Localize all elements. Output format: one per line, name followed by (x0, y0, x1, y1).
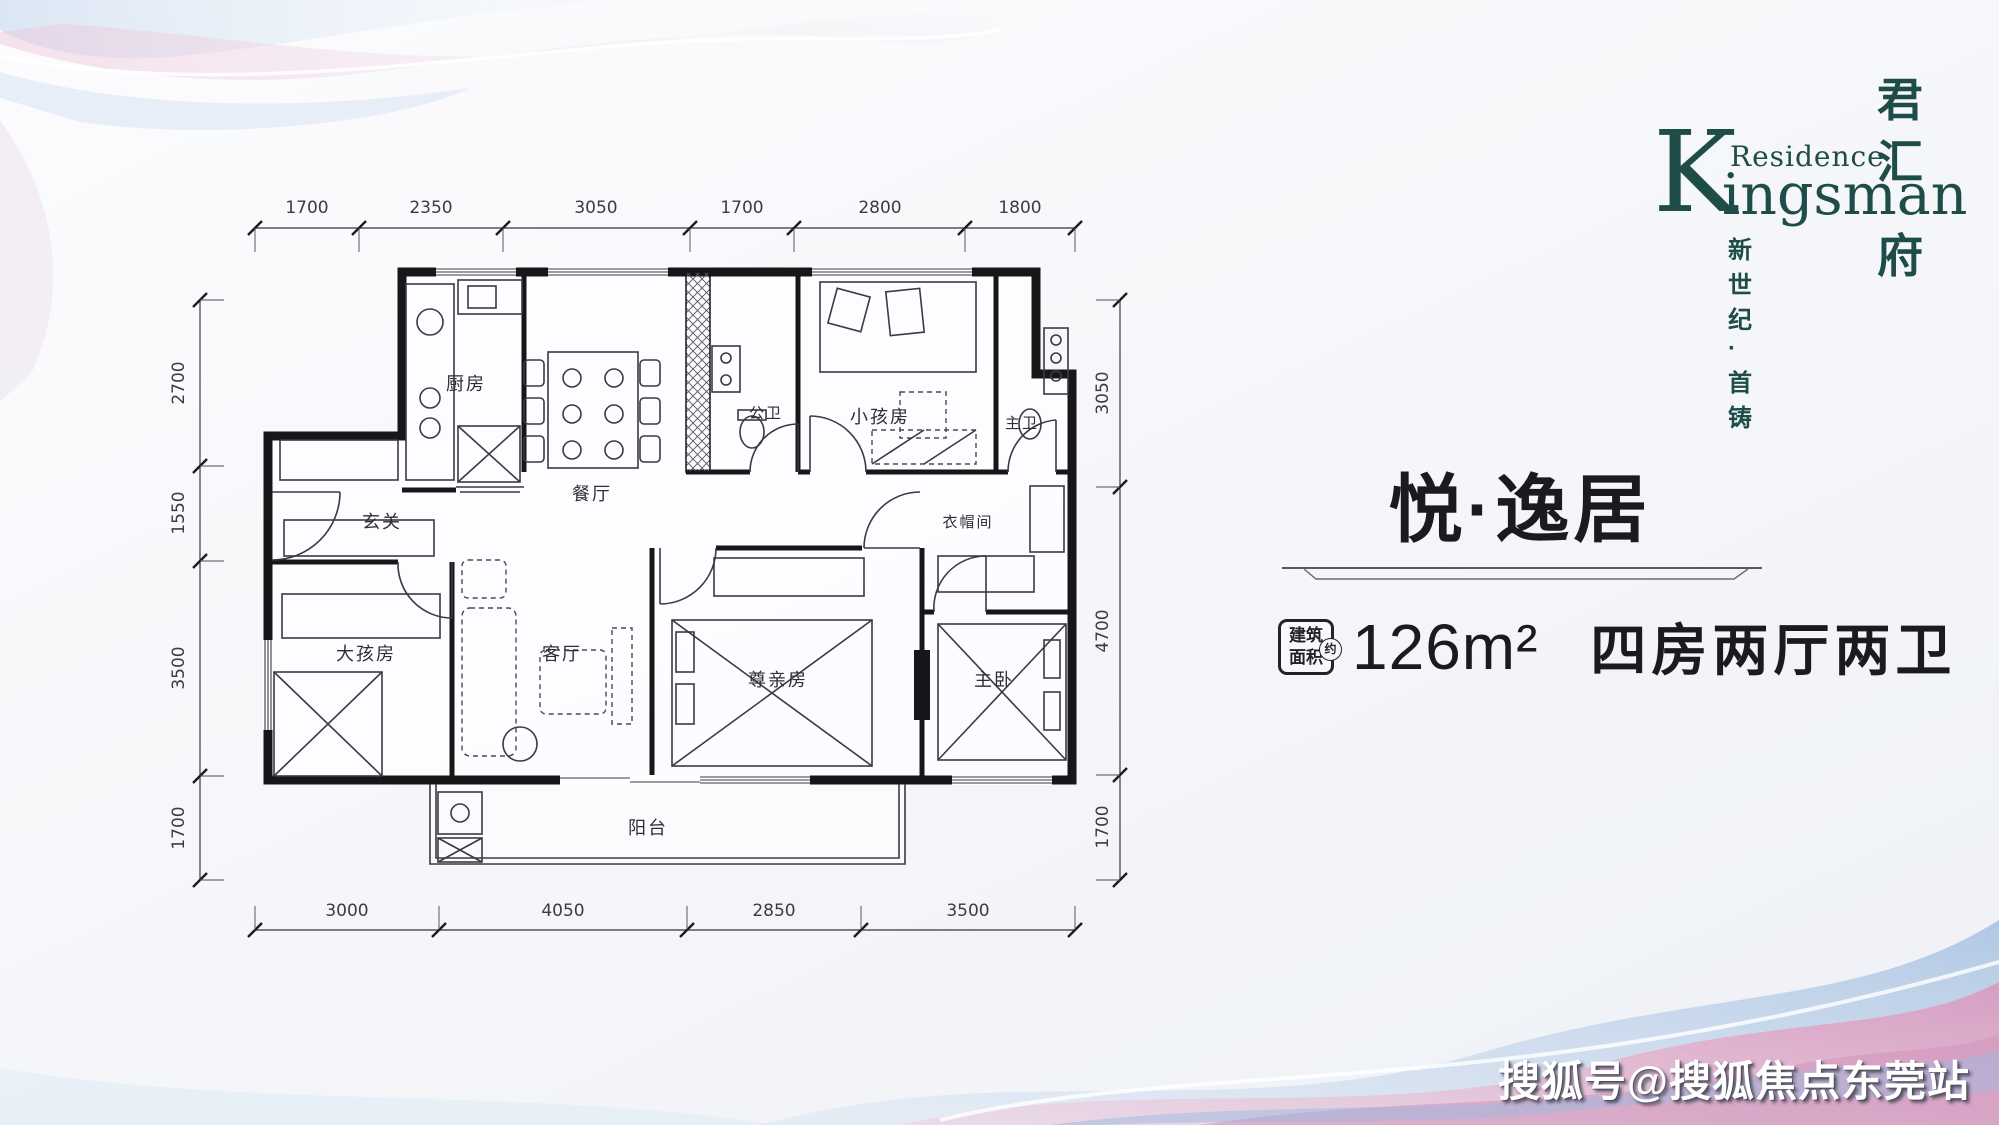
dim-right-0: 3050 (1093, 371, 1113, 414)
window-parents (700, 775, 810, 785)
area-label-box: 建筑 面积 约 (1278, 619, 1334, 675)
room-label-parents-room: 尊亲房 (748, 670, 808, 691)
room-label-kitchen: 厨房 (446, 374, 486, 395)
spec-row: 建筑 面积 约 126m² 四房两厅两卫 (1278, 606, 1956, 687)
room-label-kids-room: 小孩房 (850, 407, 910, 428)
layout-text: 四房两厅两卫 (1590, 606, 1956, 687)
dim-bottom-3: 3500 (946, 901, 989, 921)
sliding-door-living (560, 775, 700, 785)
shaft-hatch (686, 272, 710, 472)
area-label-line2: 面积 (1289, 647, 1323, 668)
dim-left-3: 1700 (169, 806, 189, 849)
dim-top-5: 1800 (998, 198, 1041, 218)
dim-left-2: 3500 (169, 646, 189, 689)
watermark: 搜狐号@搜狐焦点东莞站 (1498, 1048, 1970, 1109)
window-dining (548, 267, 668, 277)
room-label-guest-bath: 公卫 (749, 404, 783, 422)
logo-vertical-char-2: 汇 (1872, 126, 1928, 192)
window-kitchen (436, 267, 516, 277)
logo-kingsman-text: ingsman (1722, 162, 1967, 228)
dim-left-1: 1550 (169, 491, 189, 534)
window-master (952, 775, 1052, 785)
room-label-balcony: 阳台 (628, 818, 668, 839)
room-label-master-bath: 主卫 (1005, 414, 1039, 432)
dim-top-1: 2350 (409, 198, 452, 218)
logo-vertical-char-3: 府 (1872, 220, 1928, 286)
dim-top-4: 2800 (858, 198, 901, 218)
window-kids (812, 267, 972, 277)
window-bigkids (263, 640, 273, 730)
dim-right-1: 4700 (1093, 609, 1113, 652)
room-label-dining: 餐厅 (572, 484, 612, 505)
area-label-line1: 建筑 (1289, 625, 1323, 646)
poster-page: 1700 2350 3050 1700 2800 1800 3000 4050 … (0, 0, 1999, 1125)
logo-vertical-char-1: 君 (1872, 64, 1928, 130)
room-label-master-bedroom: 主卧 (974, 670, 1014, 691)
dim-right-2: 1700 (1093, 805, 1113, 848)
logo-tagline: 新世纪·首铸 (1728, 230, 1756, 433)
unit-title: 悦·逸居 (1270, 450, 1770, 557)
dim-bottom-2: 2850 (752, 901, 795, 921)
title-divider (1282, 566, 1762, 584)
dim-bottom-1: 4050 (541, 901, 584, 921)
approx-badge: 约 (1319, 638, 1342, 661)
room-label-cloakroom: 衣帽间 (942, 513, 993, 531)
room-label-foyer: 玄关 (362, 512, 402, 533)
dim-top-2: 3050 (574, 198, 617, 218)
area-value: 126m² (1352, 610, 1538, 684)
dim-top-3: 1700 (720, 198, 763, 218)
room-label-living-room: 客厅 (542, 644, 582, 665)
dim-top-0: 1700 (285, 198, 328, 218)
dim-bottom-0: 3000 (325, 901, 368, 921)
room-label-big-kids-room: 大孩房 (336, 644, 396, 665)
dim-left-0: 2700 (169, 361, 189, 404)
